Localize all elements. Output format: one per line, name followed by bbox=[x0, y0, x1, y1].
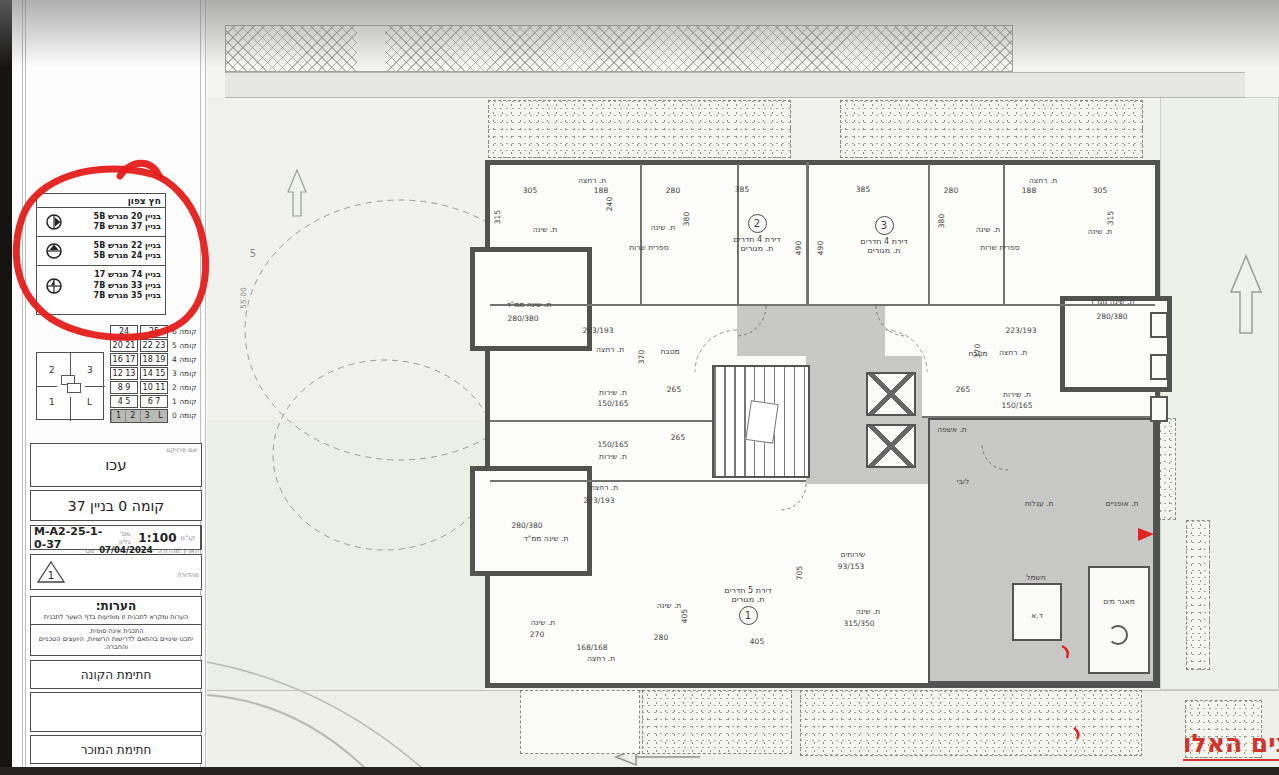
floor-cell: 2 bbox=[125, 410, 139, 422]
key-plan-section: 2 bbox=[49, 365, 55, 375]
apartment-room: ת. מגורים bbox=[829, 246, 939, 255]
dimension: 315 bbox=[1106, 211, 1115, 225]
room-label: ת. אופניים bbox=[1106, 499, 1139, 508]
dimension: 380 bbox=[682, 212, 691, 226]
floorplan-viewer: 2 דירת 4 חדרים ת. מגורים 3 דירת 4 חדרים … bbox=[0, 0, 1279, 775]
dimension: 280 bbox=[654, 633, 668, 642]
room-label: ת. שינה ממ"ד bbox=[524, 534, 569, 543]
apartment-1-label: דירת 5 חדרים ת. מגורים 1 bbox=[693, 586, 803, 627]
dimension: 240 bbox=[605, 197, 614, 211]
room-dimension: 280/380 bbox=[1096, 312, 1127, 321]
apartment-number: 3 bbox=[875, 216, 894, 235]
floor-cell: 3 bbox=[140, 410, 154, 422]
floor-label: קומה 0 bbox=[172, 411, 208, 420]
revision-box: 1 תאריך מהדורה 07/04/2024 מס' מהדורה תיא… bbox=[30, 554, 202, 590]
project-name: עכו bbox=[31, 456, 201, 474]
revision-date-label: תאריך מהדורה bbox=[158, 547, 199, 555]
dimension: 315 bbox=[493, 210, 502, 224]
red-mark bbox=[1074, 728, 1078, 739]
room-label: ת. שינה ממ"ד bbox=[507, 300, 552, 309]
room-label: ת. אשפה bbox=[937, 425, 967, 434]
room-label: ספרית שרות bbox=[980, 243, 1019, 252]
room-label: ת. רחצה bbox=[587, 654, 615, 663]
red-circle-annotation bbox=[2, 152, 212, 347]
site-label: 5 bbox=[250, 248, 256, 259]
dimension: 380 bbox=[937, 214, 946, 228]
room-label: ת. רחצה bbox=[1029, 176, 1057, 185]
apartment-number: 1 bbox=[739, 606, 758, 625]
room-label: ת. רחצה bbox=[590, 483, 618, 492]
dimension: 188 bbox=[1022, 186, 1036, 195]
apartment-room: ת. מגורים bbox=[693, 595, 803, 604]
room-label: ת. שינה bbox=[1088, 227, 1113, 236]
dimension: 265 bbox=[956, 385, 970, 394]
dimension: 188 bbox=[594, 186, 608, 195]
svg-text:1: 1 bbox=[48, 570, 54, 581]
dimension: 490 bbox=[816, 241, 825, 255]
room-dimension: 223/193 bbox=[583, 496, 614, 505]
room-dimension: 223/193 bbox=[582, 326, 613, 335]
dimension: 265 bbox=[667, 385, 681, 394]
dimension: 405 bbox=[750, 637, 764, 646]
room-label: ספרית שרות bbox=[629, 243, 668, 252]
dimension: 370 bbox=[637, 350, 646, 364]
dimension: 490 bbox=[794, 241, 803, 255]
floor-cell: 1 bbox=[111, 410, 125, 422]
dimension: 265 bbox=[671, 433, 685, 442]
sheet-title: קומה 0 בניין 37 bbox=[68, 498, 164, 514]
room-label: ת. רחצה bbox=[999, 348, 1027, 357]
signature-empty-box bbox=[30, 692, 202, 732]
dimension: 280 bbox=[944, 186, 958, 195]
seller-signature-box: חתימת המוכר bbox=[30, 735, 202, 764]
apartment-3-label: 3 דירת 4 חדרים ת. מגורים bbox=[829, 214, 939, 255]
room-label: ת. שירות bbox=[599, 452, 627, 461]
dimension: 370 bbox=[973, 344, 982, 358]
notes-box: הערות: הערות ומקרא לתכנית זו מופיעות בדף… bbox=[30, 596, 202, 656]
room-label: שירותים bbox=[841, 550, 866, 559]
red-annotation-text: צים האלו bbox=[1183, 729, 1279, 761]
room-dimension: 280/380 bbox=[507, 314, 538, 323]
room-label: ת. שינה bbox=[531, 618, 556, 627]
room-dimension: 223/193 bbox=[1005, 326, 1036, 335]
room-dimension: 150/165 bbox=[1001, 401, 1032, 410]
floor-label: קומה 3 bbox=[172, 369, 208, 378]
red-mark bbox=[1062, 646, 1068, 658]
room-label: ת. שינה ממ"ד bbox=[1090, 297, 1135, 306]
room-dimension: 315/350 bbox=[843, 619, 874, 628]
floor-label: קומה 2 bbox=[172, 383, 208, 392]
room-label: לובי bbox=[957, 477, 969, 486]
dimension: 280 bbox=[666, 186, 680, 195]
sidebar-inner-line bbox=[22, 0, 23, 775]
apartment-number: 2 bbox=[748, 214, 767, 233]
project-name-label: שם פרויקט bbox=[31, 444, 201, 454]
room-label: חשמל bbox=[1026, 573, 1046, 582]
apartment-type: דירת 5 חדרים bbox=[693, 586, 803, 595]
dimension: 705 bbox=[795, 566, 804, 580]
seller-signature-label: חתימת המוכר bbox=[81, 743, 152, 757]
sidebar-inner-line bbox=[25, 0, 26, 775]
left-black-edge bbox=[0, 0, 12, 775]
key-plan-section: L bbox=[87, 397, 92, 407]
room-dimension: 93/153 bbox=[838, 562, 864, 571]
floor-cell: 16 17 bbox=[110, 353, 138, 366]
notes-title: הערות: bbox=[33, 599, 199, 613]
buyer-signature-box: חתימת הקונה bbox=[30, 660, 202, 689]
floor-label: קומה 1 bbox=[172, 397, 208, 406]
buyer-signature-label: חתימת הקונה bbox=[81, 668, 152, 682]
room-dimension: 150/165 bbox=[597, 440, 628, 449]
floor-row-current: 1 2 3 L bbox=[110, 409, 168, 423]
room-dimension: 150/165 bbox=[597, 399, 628, 408]
floor-label: קומה 4 bbox=[172, 355, 208, 364]
room-label: ת. רחצה bbox=[578, 176, 606, 185]
room-label: ת. רחצה bbox=[596, 345, 624, 354]
key-plan-section: 3 bbox=[87, 365, 93, 375]
red-mark bbox=[1138, 528, 1154, 541]
floor-cell: 6 7 bbox=[140, 395, 168, 408]
elevation-label: 55.00 bbox=[239, 287, 248, 308]
room-label: ת. שינה bbox=[651, 223, 676, 232]
room-label: ת. שירות bbox=[599, 388, 627, 397]
floor-cell: 10 11 bbox=[140, 381, 168, 394]
notes-line: הערות ומקרא לתכנית זו מופיעות בדף השער ל… bbox=[33, 613, 199, 621]
room-label: ת. שינה bbox=[533, 225, 558, 234]
key-plan: 2 3 1 L bbox=[36, 352, 104, 420]
dimension: 385 bbox=[735, 185, 749, 194]
floor-cell: L bbox=[154, 410, 167, 422]
room-label: ת. שינה bbox=[856, 607, 881, 616]
room-label: ד.א bbox=[1031, 611, 1043, 620]
room-label: ת. שינה bbox=[976, 225, 1001, 234]
dimension: 305 bbox=[1093, 186, 1107, 195]
sidebar: חץ צפון בניין 20 מגרש 5B בניין 37 מגרש 7… bbox=[12, 0, 207, 775]
apartment-type: דירת 4 חדרים bbox=[829, 237, 939, 246]
room-label: מאגר מים bbox=[1103, 597, 1135, 606]
floor-cell: 4 5 bbox=[110, 395, 138, 408]
sheet-title-box: קומה 0 בניין 37 bbox=[30, 490, 202, 521]
floor-cell: 18 19 bbox=[140, 353, 168, 366]
room-label: מטבח bbox=[660, 347, 679, 356]
dimension: 385 bbox=[856, 185, 870, 194]
notes-line: יתכנו שינויים בהתאם לדרישות הרשויות, היו… bbox=[33, 635, 199, 651]
floor-cell: 12 13 bbox=[110, 367, 138, 380]
floor-cell: 14 15 bbox=[140, 367, 168, 380]
project-name-box: שם פרויקט עכו bbox=[30, 443, 202, 487]
room-label: ת. עגלות bbox=[1025, 499, 1054, 508]
floor-cell: 8 9 bbox=[110, 381, 138, 394]
room-dimension: 168/168 bbox=[576, 643, 607, 652]
room-dimension: 280/380 bbox=[511, 521, 542, 530]
dimension: 270 bbox=[530, 630, 544, 639]
revision-date: 07/04/2024 bbox=[99, 545, 153, 555]
bottom-dark-bar bbox=[0, 767, 1279, 775]
revision-triangle: 1 bbox=[31, 560, 71, 584]
key-plan-section: 1 bbox=[49, 397, 55, 407]
dimension: 305 bbox=[523, 186, 537, 195]
notes-line: התכנית אינה סופית. bbox=[33, 627, 199, 635]
dimension: 405 bbox=[680, 609, 689, 623]
room-label: ת. שירות bbox=[1003, 390, 1031, 399]
room-label: ת. שינה bbox=[657, 601, 682, 610]
